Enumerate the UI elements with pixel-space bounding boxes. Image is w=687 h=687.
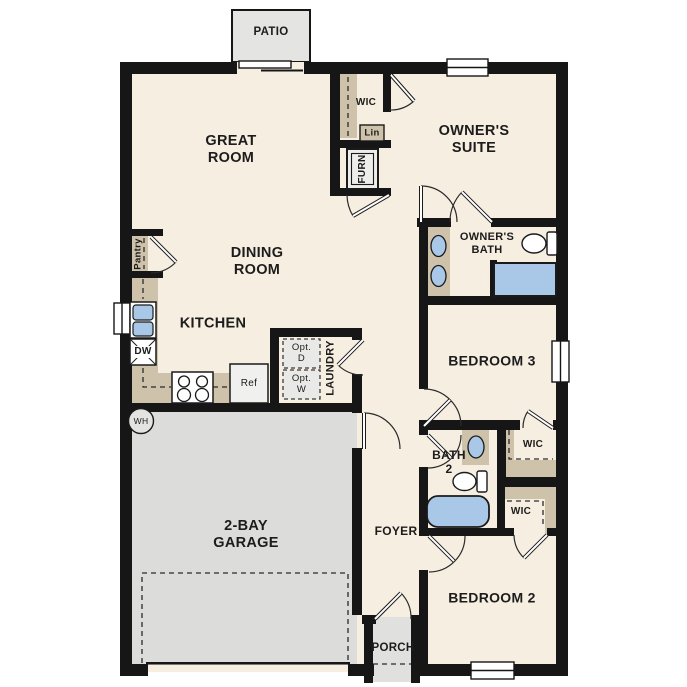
room-label-wic-bath2: WIC — [523, 439, 543, 451]
kitchen-sink — [130, 302, 156, 338]
room-label-owners-suite: OWNER'S SUITE — [429, 123, 519, 157]
room-label-kitchen: KITCHEN — [180, 315, 247, 332]
room-label-wic-bedroom2: WIC — [511, 506, 531, 518]
room-label-bath-2: BATH 2 — [427, 448, 471, 476]
label-water-heater: WH — [134, 416, 149, 426]
room-label-patio: PATIO — [254, 26, 289, 40]
label-refrigerator: Ref — [241, 378, 257, 390]
floor-plan: PATIO GREAT ROOM WIC Lin FURN OWNER'S SU… — [0, 0, 687, 687]
label-opt-washer: Opt. W — [288, 373, 316, 395]
room-label-bedroom-3: BEDROOM 3 — [448, 353, 536, 370]
room-label-owners-bath: OWNER'S BATH — [451, 231, 523, 257]
room-label-bedroom-2: BEDROOM 2 — [448, 590, 536, 607]
room-label-foyer: FOYER — [375, 524, 418, 538]
owners-bath-toilet — [522, 232, 557, 255]
floor-plan-drawing — [0, 0, 687, 687]
owners-bath-sink-1 — [431, 236, 446, 257]
room-label-garage: 2-BAY GARAGE — [209, 518, 284, 552]
room-label-laundry: LAUNDRY — [325, 340, 338, 395]
wic-bath2-shelf-bottom — [506, 460, 556, 477]
label-opt-dryer: Opt. D — [288, 342, 316, 364]
stove — [172, 372, 213, 403]
room-label-porch: PORCH — [371, 642, 414, 656]
owners-bath-sink-2 — [431, 266, 446, 287]
patio-sliding-door — [237, 61, 304, 74]
owners-bath-shower — [494, 263, 556, 296]
room-label-wic-upper: WIC — [356, 97, 376, 109]
room-label-furnace: FURN — [357, 155, 369, 184]
room-label-great-room: GREAT ROOM — [196, 133, 266, 167]
room-label-pantry: Pantry — [132, 238, 143, 269]
garage-door-line — [146, 662, 350, 665]
label-dishwasher: DW — [134, 346, 151, 358]
bath2-tub — [427, 496, 489, 527]
room-label-linen: Lin — [364, 127, 379, 138]
room-label-dining-room: DINING ROOM — [222, 245, 292, 279]
